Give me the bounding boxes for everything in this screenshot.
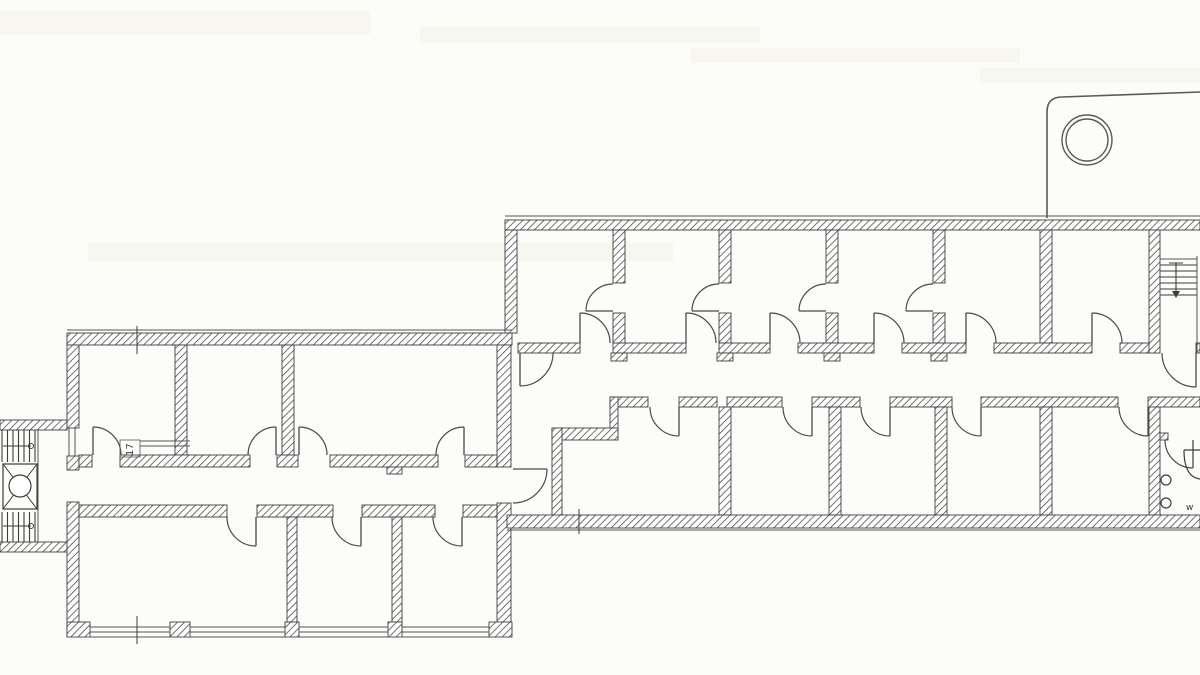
wall (330, 455, 438, 467)
door-swing-arc (93, 427, 121, 455)
plan-label: w (1186, 503, 1193, 513)
door (1119, 407, 1148, 436)
wall (518, 343, 580, 353)
door-swing-arc (580, 313, 610, 343)
wall (1160, 433, 1168, 440)
wall (1040, 230, 1052, 343)
door-swing-arc (861, 407, 890, 436)
wall (175, 345, 187, 455)
wall (67, 345, 79, 428)
door (1092, 313, 1122, 343)
door (966, 313, 996, 343)
door (770, 313, 800, 343)
wall (1149, 407, 1160, 515)
door (586, 284, 613, 311)
wall (812, 397, 860, 407)
wall (67, 333, 512, 345)
wall (282, 345, 294, 455)
wc-fixture (1161, 498, 1171, 508)
wall (613, 343, 686, 353)
wall (931, 353, 947, 361)
wall (611, 353, 627, 361)
entrance-canopy (1047, 92, 1200, 218)
wall (1148, 397, 1200, 407)
wall (717, 353, 733, 361)
door (692, 284, 719, 311)
scan-streak (420, 26, 760, 42)
wall (67, 456, 79, 470)
wall (552, 428, 562, 527)
wall (67, 502, 79, 637)
wall (829, 407, 841, 515)
labels-layer: 17w (120, 440, 1193, 513)
door (906, 284, 933, 311)
door (686, 313, 716, 343)
door (874, 313, 904, 343)
wall (507, 515, 1200, 528)
elevator-cab (9, 475, 31, 497)
door (952, 407, 981, 436)
door (520, 353, 553, 386)
door-swing-arc (227, 517, 256, 546)
floor-plan-page: 17w (0, 0, 1200, 675)
door-swing-arc (799, 284, 826, 311)
wall (505, 220, 1200, 230)
wall (79, 455, 92, 467)
door (433, 517, 462, 546)
door (93, 427, 121, 455)
door (799, 284, 826, 311)
door-swing-arc (520, 353, 553, 386)
wall (719, 313, 731, 343)
wall (387, 467, 402, 474)
wall (257, 505, 333, 517)
door-swing-arc (513, 469, 547, 503)
wall (613, 313, 625, 343)
canopy-column (1066, 119, 1108, 161)
door-swing-arc (1162, 353, 1196, 387)
door-swing-arc (299, 427, 327, 455)
wall (719, 230, 731, 283)
wall (981, 397, 1118, 407)
wall (933, 313, 945, 343)
scan-streak (0, 10, 370, 34)
wc-sink (1184, 450, 1200, 479)
door (861, 407, 890, 436)
canopy-outline (1047, 92, 1200, 218)
floor-plan-drawing: 17w (0, 0, 1200, 675)
door-swing-arc (433, 517, 462, 546)
wall (0, 420, 67, 430)
plan-label: 17 (125, 443, 136, 456)
wall (497, 345, 511, 467)
door (650, 407, 679, 436)
door-swing-arc (783, 407, 812, 436)
door-swing-arc (332, 517, 361, 546)
wall (798, 343, 874, 353)
door (513, 469, 547, 503)
wall (463, 505, 497, 517)
wall (613, 230, 625, 283)
wall (287, 517, 297, 622)
door (783, 407, 812, 436)
door-swing-arc (952, 407, 981, 436)
door-swing-arc (692, 284, 719, 311)
wall (719, 407, 731, 515)
wall (1149, 230, 1160, 353)
wall (392, 517, 402, 622)
wall (489, 622, 512, 637)
door-swing-arc (770, 313, 800, 343)
wall (933, 230, 945, 283)
wall (465, 455, 497, 467)
wall (1040, 407, 1052, 515)
wall (826, 230, 838, 283)
scan-streak (88, 243, 673, 261)
door-swing-arc (1092, 313, 1122, 343)
wall (0, 542, 67, 552)
fixtures-layer (1161, 450, 1200, 508)
wall (727, 397, 782, 407)
wall (505, 230, 517, 333)
wall (890, 397, 952, 407)
wall (719, 343, 770, 353)
wall (824, 353, 840, 361)
door (580, 313, 610, 343)
door-swing-arc (650, 407, 679, 436)
wall (610, 397, 618, 430)
scan-streak (980, 68, 1200, 82)
wall (362, 505, 435, 517)
wall (388, 622, 402, 637)
wall (935, 407, 947, 515)
wall (994, 343, 1092, 353)
door (248, 427, 276, 455)
wc-fixture (1161, 475, 1171, 485)
wall (902, 343, 966, 353)
wall (1120, 343, 1149, 353)
wall (285, 622, 299, 637)
door-swing-arc (1165, 440, 1193, 468)
wall (170, 622, 190, 637)
door-swing-arc (1119, 407, 1148, 436)
wall (679, 397, 717, 407)
door-swing-arc (906, 284, 933, 311)
wall (67, 622, 90, 637)
wall (79, 505, 227, 517)
door-swing-arc (686, 313, 716, 343)
wall (277, 455, 298, 467)
door-swing-arc (874, 313, 904, 343)
canopy-column (1062, 115, 1112, 165)
door (1165, 440, 1193, 468)
door (1162, 353, 1196, 387)
door-swing-arc (436, 427, 464, 455)
door-swing-arc (586, 284, 613, 311)
door-swing-arc (966, 313, 996, 343)
door (227, 517, 256, 546)
door (332, 517, 361, 546)
scan-streak (690, 48, 1020, 63)
door-swing-arc (248, 427, 276, 455)
wall (826, 313, 838, 343)
walls-layer (0, 220, 1200, 637)
door (299, 427, 327, 455)
door (436, 427, 464, 455)
